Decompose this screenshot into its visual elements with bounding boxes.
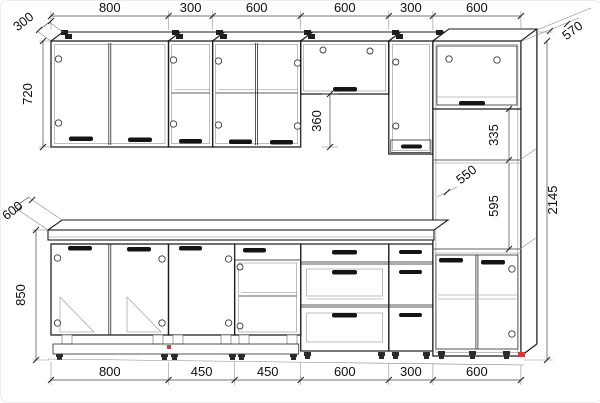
hinge-circles (393, 59, 399, 129)
base-cabinets-row (51, 244, 433, 360)
countertop (48, 220, 448, 240)
dim-tall-depth: 570 (559, 18, 585, 43)
door-handle (270, 140, 293, 145)
dim-bottom-600b: 600 (466, 364, 488, 379)
hinge-circles (225, 256, 231, 326)
dim-tall-open-lower: 595 (486, 195, 501, 217)
dim-top-300b: 300 (400, 1, 422, 15)
dim-top-600b: 600 (334, 1, 356, 15)
dim-wall-depth: 300 (10, 9, 36, 34)
hinge-circles (320, 47, 373, 54)
dim-flip-gap: 360 (309, 110, 324, 132)
adjustable-feet (438, 351, 510, 359)
door-handle (481, 260, 505, 265)
adjustable-feet (392, 352, 430, 359)
drawer-handle (399, 270, 422, 274)
flip-door-handle (459, 101, 485, 106)
base-drawer-unit-600 (301, 244, 389, 359)
wall-cabinet-flip-600 (301, 41, 389, 94)
dim-wall-height: 720 (20, 83, 35, 105)
red-marker-small (167, 345, 171, 349)
dim-bottom-450b: 450 (257, 364, 279, 379)
dim-bottom-450a: 450 (191, 364, 213, 379)
door-handle (179, 246, 202, 251)
hinge-circles (509, 266, 515, 337)
drawer-handle (332, 313, 357, 318)
adjustable-feet (56, 354, 297, 360)
corner-brace (127, 297, 161, 332)
red-marker (518, 352, 525, 357)
wall-cabinet-600 (213, 41, 301, 147)
drawer-handle (332, 270, 357, 275)
dim-top-600a: 600 (246, 1, 268, 15)
corner-brace (60, 297, 94, 332)
adjustable-feet (304, 352, 385, 359)
drawer-handle (399, 250, 422, 254)
dim-bottom-800: 800 (99, 364, 121, 379)
base-cabinet-800 (51, 244, 169, 344)
tall-base-doors (436, 255, 525, 359)
base-drawer-unit-300 (389, 244, 433, 359)
tall-upper-door-cabinet (433, 46, 521, 109)
hinge-circles (237, 264, 243, 329)
flip-door-handle (333, 87, 357, 92)
door-handle (229, 140, 252, 145)
door-handle (69, 137, 93, 142)
door-handle (127, 247, 151, 252)
hinge-circles (446, 56, 500, 63)
plinth (53, 344, 299, 360)
wall-cabinet-300 (169, 41, 213, 147)
drawer-handle (332, 250, 357, 255)
dim-total-height: 2145 (545, 186, 560, 215)
base-cabinet-450-door (169, 244, 235, 344)
door-handle (128, 138, 152, 143)
flap-handle (401, 145, 422, 149)
dim-bottom-300: 300 (400, 364, 422, 379)
bottom-dimension-line: 800 450 450 600 300 600 (48, 362, 524, 385)
technical-drawing-canvas: 800 300 600 600 300 600 800 450 (0, 0, 600, 403)
tall-cabinet-column (433, 29, 537, 359)
kitchen-elevation-drawing: 800 300 600 600 300 600 800 450 (1, 1, 600, 402)
hinge-circles (54, 255, 165, 326)
door-handle (68, 246, 92, 251)
door-handle (179, 139, 202, 144)
wall-cabinets-row (51, 30, 447, 154)
left-dimensions: 300 720 600 850 (1, 9, 63, 363)
right-dimensions: 570 2145 (522, 8, 591, 363)
wall-unit-narrow-300 (389, 41, 433, 154)
top-dimension-line: 800 300 600 600 300 600 (48, 1, 524, 30)
drawer-handle (243, 248, 266, 253)
door-handle (439, 258, 463, 263)
dim-top-800: 800 (99, 1, 121, 15)
dim-shelf-depth: 550 (453, 162, 479, 187)
base-cabinet-450-open (235, 244, 301, 344)
dim-top-600c: 600 (466, 1, 488, 15)
dim-tall-open-upper: 335 (486, 124, 501, 146)
hinge-circles (55, 56, 61, 126)
dim-top-300: 300 (180, 1, 202, 15)
drawer-handle (399, 313, 422, 317)
dim-bottom-600a: 600 (334, 364, 356, 379)
wall-cabinet-800 (51, 41, 169, 147)
dim-base-height: 850 (13, 284, 28, 306)
